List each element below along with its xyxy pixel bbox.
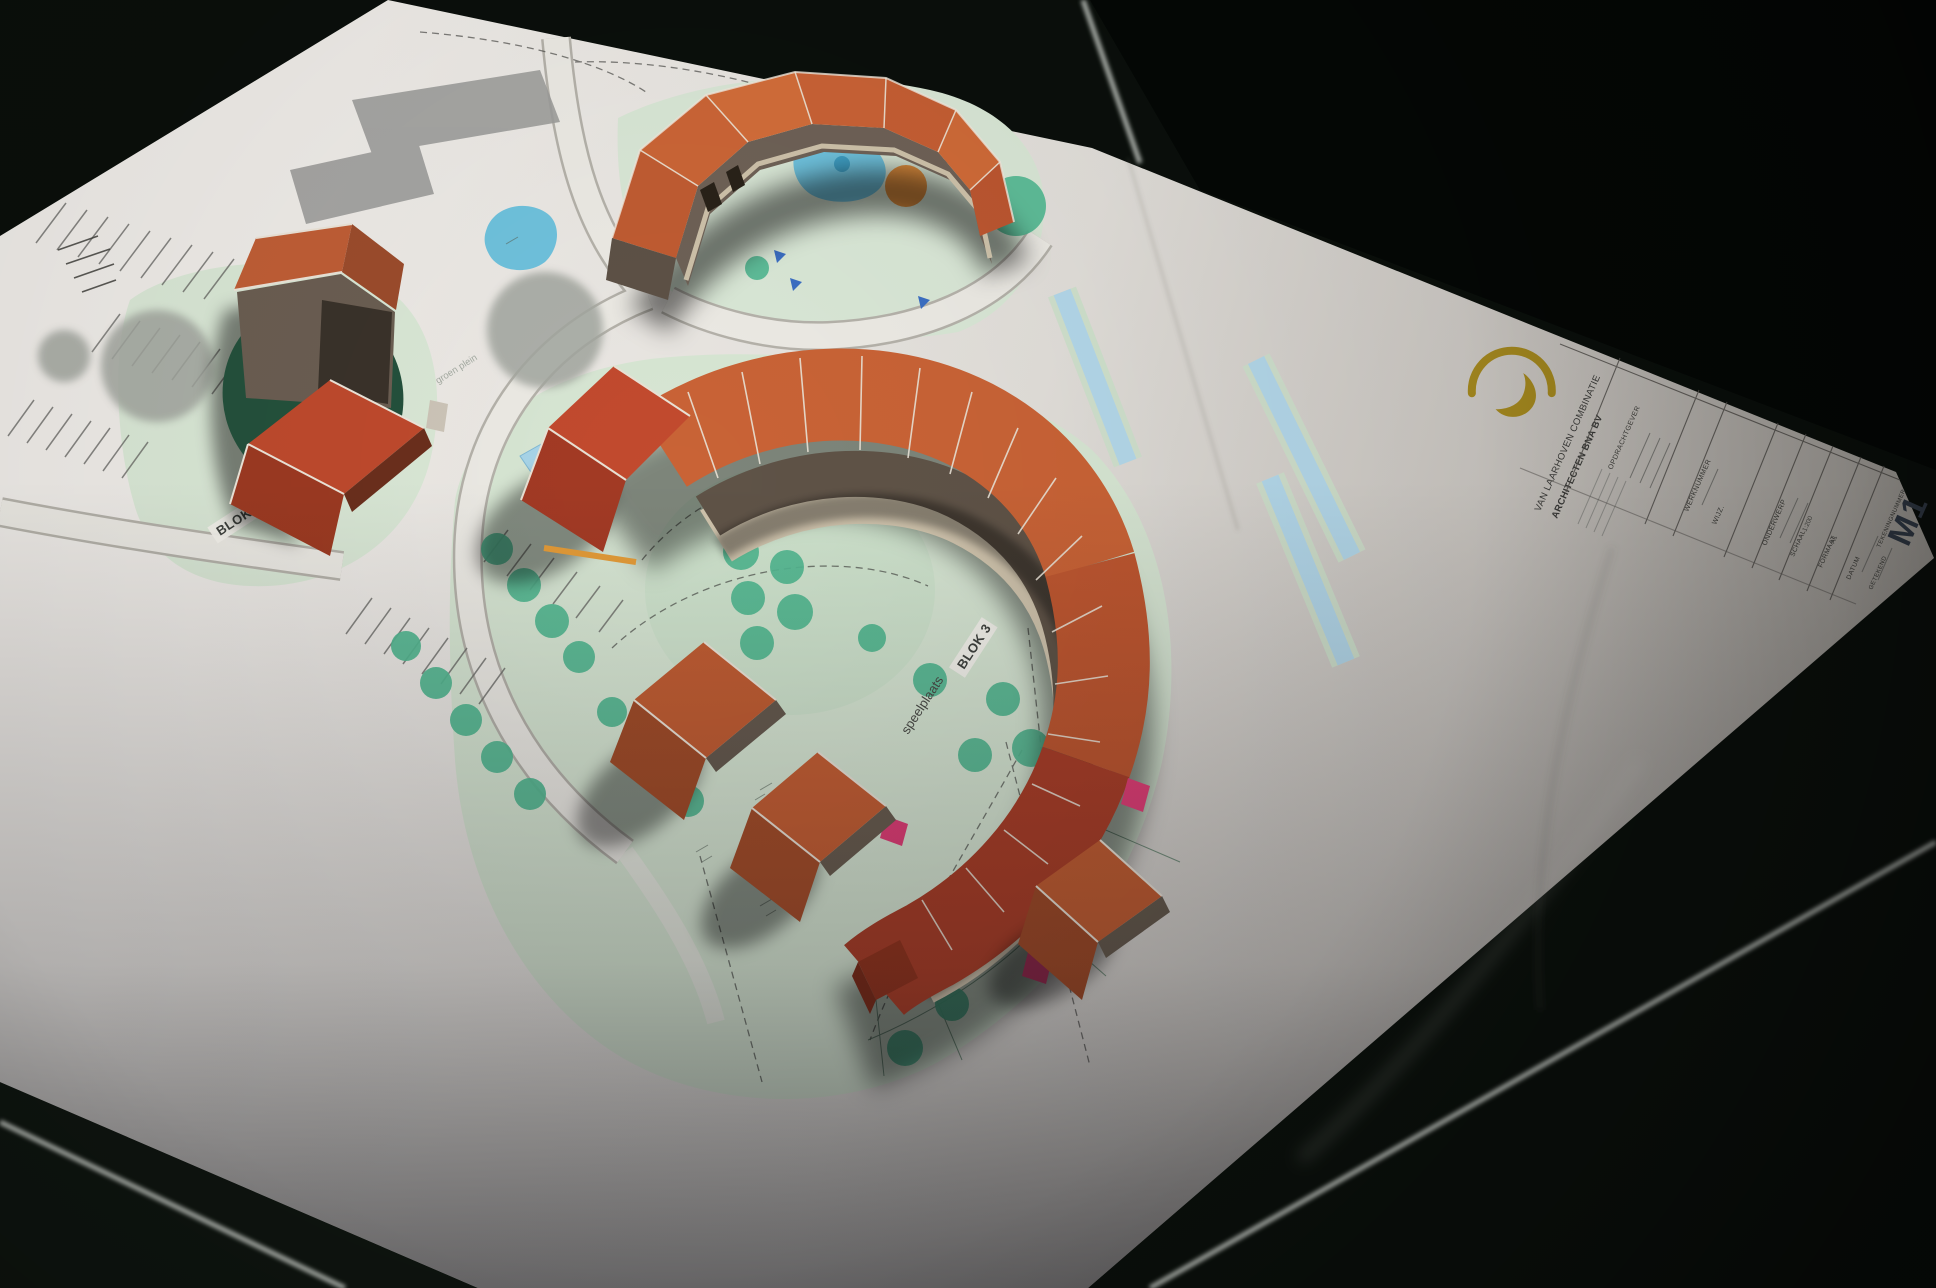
scene-canvas: BLOK 1 BLOK 3 speelplaats groen plein (0, 0, 1936, 1288)
photo-architectural-model-site-plan: BLOK 1 BLOK 3 speelplaats groen plein (0, 0, 1936, 1288)
pond-left (485, 206, 557, 270)
